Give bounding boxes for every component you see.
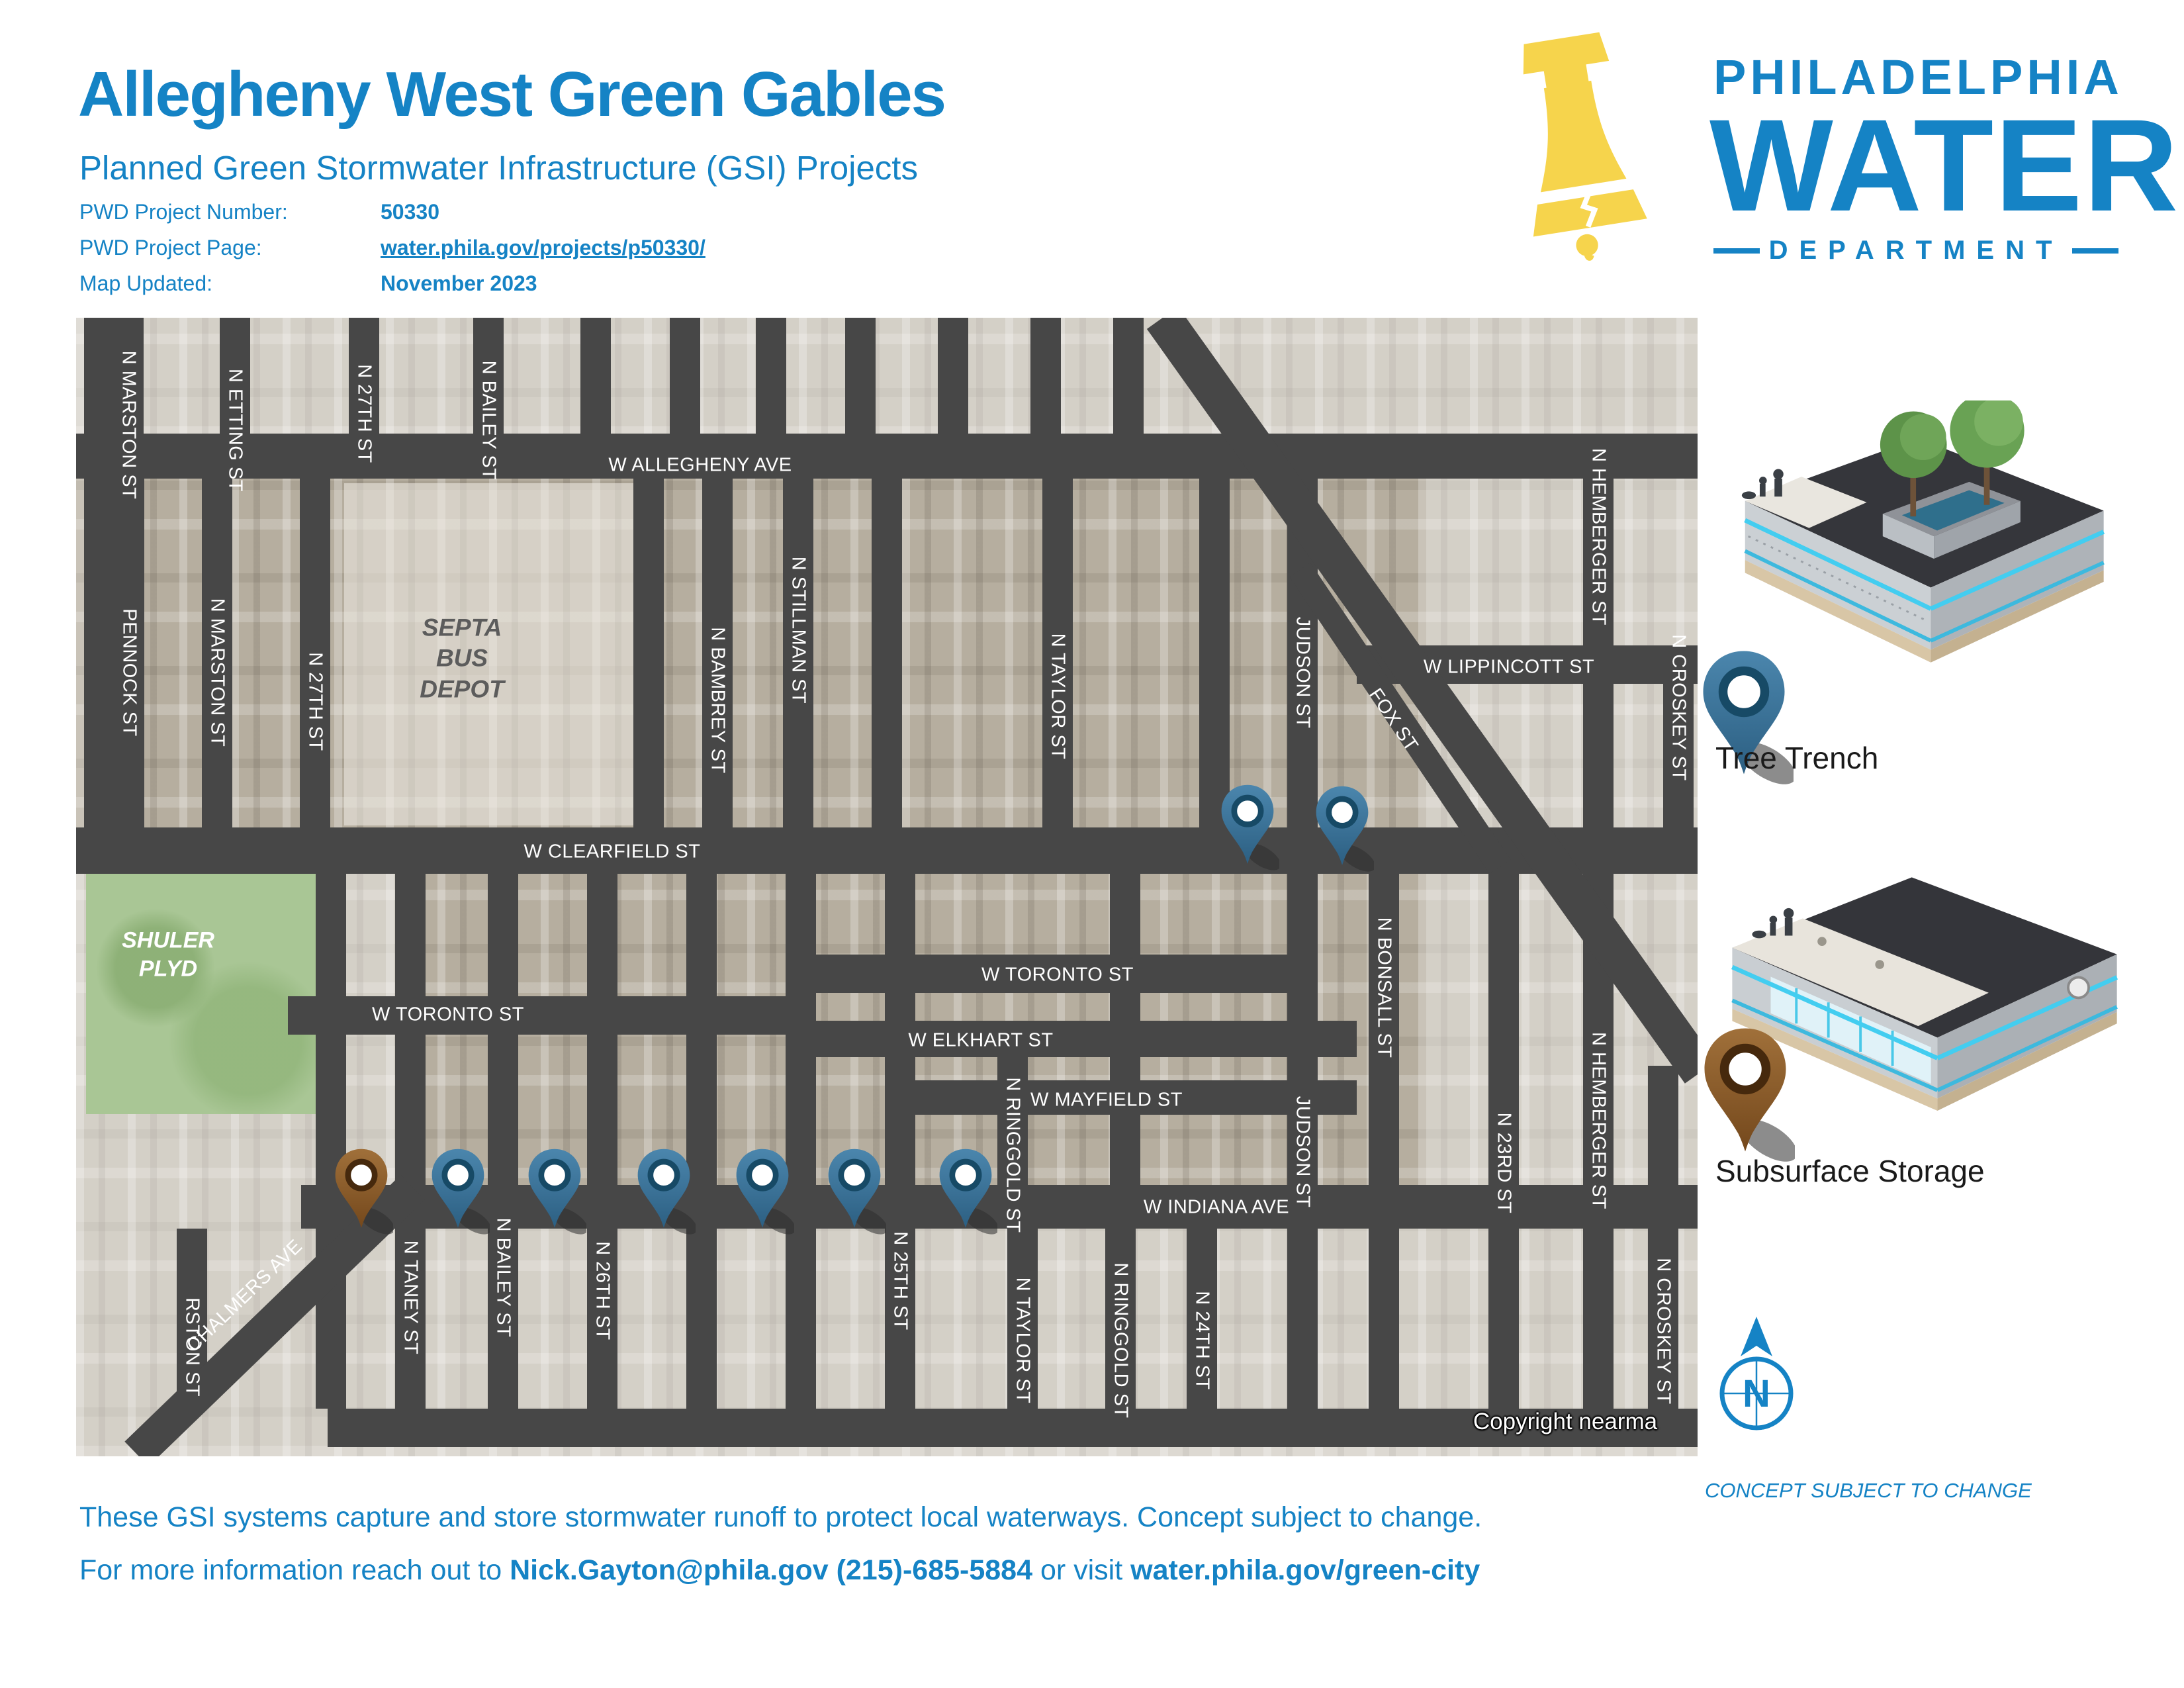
area-label: SHULER PLYD [122,927,214,983]
road-segment [1369,1229,1399,1409]
road-segment [395,874,426,1185]
street-label: N BAILEY ST [492,1218,514,1338]
road-segment [938,318,968,434]
meta-project-number: PWD Project Number: 50330 [79,200,1006,230]
street-label: N TAYLOR ST [1012,1278,1034,1404]
logo-department: DEPARTMENT [1713,236,2118,265]
road-segment [587,874,617,1185]
road-segment [686,1229,717,1409]
road-segment [1488,1229,1519,1409]
road-segment [786,1229,816,1409]
street-label: N 27TH ST [353,364,375,463]
page-title: Allegheny West Green Gables [78,58,945,131]
map-copyright: Copyright nearma [1473,1409,1657,1435]
liberty-bell-icon [1489,23,1664,261]
road-segment [76,434,1698,479]
street-label: JUDSON ST [1292,1096,1314,1208]
logo-dash-right [2072,248,2118,254]
street-label: N CROSKEY ST [1653,1258,1674,1404]
concept-note: CONCEPT SUBJECT TO CHANGE [1705,1479,2032,1503]
pwd-logo: PHILADELPHIA WATER DEPARTMENT [1713,40,2118,305]
street-label: W CLEARFIELD ST [524,841,701,863]
map-pin-tree-trench[interactable] [1310,783,1374,882]
map-pin-tree-trench[interactable] [632,1146,696,1244]
road-segment [1287,1229,1318,1409]
footer-contact-prefix: For more information reach out to [79,1554,510,1586]
map-pin-tree-trench[interactable] [523,1146,586,1244]
meta-label: Map Updated: [79,271,212,296]
street-label: N ETTING ST [224,369,246,492]
street-label: N 23RD ST [1493,1113,1515,1214]
map-pin-tree-trench[interactable] [426,1146,490,1244]
street-label: N CROSKEY ST [1668,634,1690,780]
map-pin-tree-trench[interactable] [934,1146,997,1244]
logo-dash-left [1713,248,1760,254]
subsurface-storage-label: Subsurface Storage [1715,1153,1985,1189]
road-segment [1110,874,1140,1185]
road-segment [580,318,611,434]
green-city-link[interactable]: water.phila.gov/green-city [1130,1554,1480,1586]
map: W ALLEGHENY AVEW LIPPINCOTT STW CLEARFIE… [76,318,1698,1456]
street-label: W INDIANA AVE [1144,1197,1289,1219]
map-pin-tree-trench[interactable] [823,1146,886,1244]
street-label: PENNOCK ST [118,608,140,737]
contact-link[interactable]: Nick.Gayton@phila.gov (215)-685-5884 [510,1554,1032,1586]
meta-map-updated: Map Updated: November 2023 [79,271,1006,302]
compass-letter: N [1743,1372,1770,1415]
road-segment [488,874,518,1185]
road-segment [1199,479,1230,827]
footer-contact-line: For more information reach out to Nick.G… [79,1554,1480,1587]
street-label: N BAMBREY ST [707,627,729,773]
road-segment [872,479,902,827]
street-label: N MARSTON ST [206,598,228,747]
street-label: W TORONTO ST [981,964,1134,986]
road-segment [1030,318,1061,434]
street-label: W TORONTO ST [372,1004,524,1026]
street-label: N 25TH ST [889,1231,911,1331]
road-segment [1583,684,1614,827]
shuler-playground-area [86,870,318,1114]
street-label: N RINGGOLD ST [1002,1077,1024,1233]
map-pin-tree-trench[interactable] [731,1146,794,1244]
road-segment [1583,1229,1614,1409]
logo-department-text: DEPARTMENT [1769,236,2064,265]
footer-description: These GSI systems capture and store stor… [79,1501,1482,1534]
road-segment [633,479,664,827]
street-label: JUDSON ST [1292,617,1314,729]
map-pin-tree-trench[interactable] [1216,782,1279,880]
street-label: N STILLMAN ST [788,557,809,704]
area-label: SEPTA BUS DEPOT [420,613,504,705]
tree-trench-label: Tree Trench [1715,740,1878,776]
street-label: N HEMBERGER ST [1588,1032,1610,1209]
compass-north-icon: N [1710,1314,1803,1440]
street-label: W MAYFIELD ST [1030,1090,1183,1111]
road-segment [786,874,816,1185]
street-label: N BAILEY ST [478,361,500,481]
road-segment [1113,318,1144,434]
road-segment [1648,1066,1678,1229]
road-segment [845,318,876,434]
meta-label: PWD Project Page: [79,236,262,260]
street-label: N MARSTON ST [118,351,140,500]
road-segment [76,827,1698,874]
street-label: N 27TH ST [304,652,326,751]
road-segment [288,996,811,1035]
street-label: N BONSALL ST [1373,917,1395,1058]
logo-water: WATER [1709,90,2179,240]
page-subtitle: Planned Green Stormwater Infrastructure … [79,148,918,187]
street-label: W ELKHART ST [908,1030,1053,1052]
footer-contact-mid: or visit [1032,1554,1130,1586]
street-label: W ALLEGHENY AVE [608,455,792,477]
project-page-link[interactable]: water.phila.gov/projects/p50330/ [381,236,705,260]
street-label: N TAYLOR ST [1047,633,1069,760]
road-segment [756,318,786,434]
road-segment [794,1021,1357,1057]
street-label: N TANEY ST [400,1241,422,1355]
street-label: N 26TH ST [592,1241,614,1340]
road-segment [84,318,114,827]
street-label: N 24TH ST [1191,1291,1213,1390]
meta-value: November 2023 [381,271,537,296]
tree-trench-illustration [1719,400,2116,679]
street-label: N RINGGOLD ST [1110,1262,1132,1418]
map-pin-subsurface-storage[interactable] [330,1146,393,1244]
road-segment [316,874,346,1185]
street-label: W LIPPINCOTT ST [1424,657,1594,679]
road-segment [670,318,700,434]
meta-label: PWD Project Number: [79,200,288,224]
road-segment [686,874,717,1185]
street-label: N HEMBERGER ST [1588,448,1610,626]
meta-value: 50330 [381,200,439,224]
meta-project-page: PWD Project Page: water.phila.gov/projec… [79,236,1006,266]
